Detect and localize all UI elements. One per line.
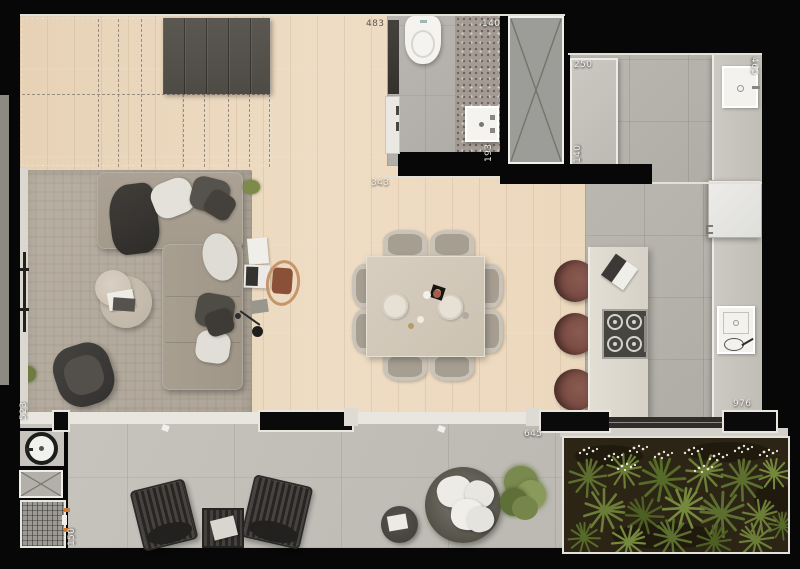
refrigerator-handle [706,225,713,234]
burner [607,336,623,352]
dim-label-kitchen-length: 976 [733,399,751,409]
service-shaft [508,16,564,164]
closed-door-panel [258,410,354,432]
slate-wall-panel [163,18,270,94]
kitchen-sink-main [717,306,755,354]
sink-faucet [752,86,760,89]
table-small-dish [462,312,469,319]
projection-line [249,94,250,167]
basin-drain [39,446,44,451]
armchair-seat [60,351,108,399]
chair-cushion [388,356,422,377]
sink-faucet-arm [741,338,753,346]
projection-line [204,94,205,167]
burner [626,336,642,352]
moss-plant [243,180,260,194]
sliding-door-handle-bracket [20,308,29,311]
dim-label-service-strip: 150 [67,528,77,546]
door-jamb [526,408,540,426]
dim-label-terrace-opening: 645 [524,429,542,439]
projection-line [141,19,142,167]
folded-towel [210,515,238,540]
shower-glass-strip [388,20,399,94]
round-basin [25,432,58,465]
projection-line [22,94,270,95]
closed-door-panel [52,410,70,432]
slatted-side-table [202,508,244,548]
door-handle [396,122,399,131]
cooktop [602,309,648,359]
sliding-door-handle [23,252,26,332]
refrigerator [708,180,762,238]
projection-line [183,94,184,167]
garden-door-track [609,417,722,428]
plant-foliage [512,496,538,520]
notepad [247,237,269,265]
dim-label-kitchen-run-side: 140 [573,145,583,163]
projection-line [118,19,119,167]
chair-cushion [388,234,422,255]
burner-center [632,342,636,346]
table-cup [423,291,431,299]
dim-label-terrace-side: 523 [19,402,29,420]
toilet-flush-button [420,20,427,23]
table-cup-terracotta [433,290,441,298]
kitchen-window-wall [539,410,611,433]
kitchen-window-wall [722,410,778,433]
round-side-table [381,506,418,543]
dim-label-bath-niche: 140 [482,19,500,29]
round-daybed [425,467,501,543]
book-gray [249,299,269,314]
wall-hall-kitchen [500,164,652,184]
sink-drain [479,122,484,127]
dim-label-living-top: 483 [366,19,384,29]
chair-cushion [435,356,469,377]
table-small-dish [417,316,424,323]
wall-face-kitchen-bottom [652,182,762,184]
grill-handle-orange [64,508,70,512]
dim-label-kitchen-run-top: 250 [574,60,592,70]
wall-face-top [20,14,565,16]
burner-center [613,320,617,324]
service-duct [19,470,63,498]
table-small-dish [408,323,414,329]
shaft-x-marker [510,18,562,162]
coffee-table-book [113,297,136,312]
burner [607,314,623,330]
wall-bath-shaft [500,16,508,166]
door-handle [396,106,399,115]
burner-center [632,320,636,324]
projection-line [269,94,270,167]
dim-label-bath-depth: 193 [484,144,494,162]
bathroom-sink [465,106,499,142]
toilet [405,16,441,64]
laptop-screen [246,267,259,286]
sink-knob [490,115,495,120]
burner-center [613,342,617,346]
dim-label-hall: 343 [371,178,389,188]
side-chair-seat [271,267,293,294]
sink-drain [733,320,739,326]
terrace-plant [498,462,550,522]
sink-drain [737,85,744,92]
magazine [387,513,408,531]
wall-face-bath-bottom [386,176,500,178]
wall-shaft-kitchen [564,16,570,166]
floor-plan: 483 140 193 343 250 140 465 976 645 523 … [0,0,800,569]
dining-chair [383,230,427,259]
cooktop-knobs [644,316,647,352]
kitchen-counter-right [712,55,762,422]
place-setting-plate [382,293,408,319]
toilet-seat [411,30,435,58]
desk-lamp-base [235,313,241,319]
sink-knob [490,128,495,133]
chair-cushion [435,234,469,255]
grill-bracket [62,515,67,525]
door-jamb [344,408,358,426]
outer-ledge-left [0,95,9,385]
basin-faucet [25,448,33,451]
duct-x-marker [21,472,61,496]
track-rail [609,422,722,423]
barbecue-grill [20,500,66,548]
projection-line [98,19,99,167]
wall-face-kitchen-top [568,53,762,55]
projection-line [228,94,229,167]
dining-chair [430,230,474,259]
dim-label-kitchen-right: 465 [749,57,759,75]
garden-planter [562,436,790,554]
sliding-door-handle-bracket [20,268,29,271]
burner [626,314,642,330]
desk-lamp-head [252,326,263,337]
